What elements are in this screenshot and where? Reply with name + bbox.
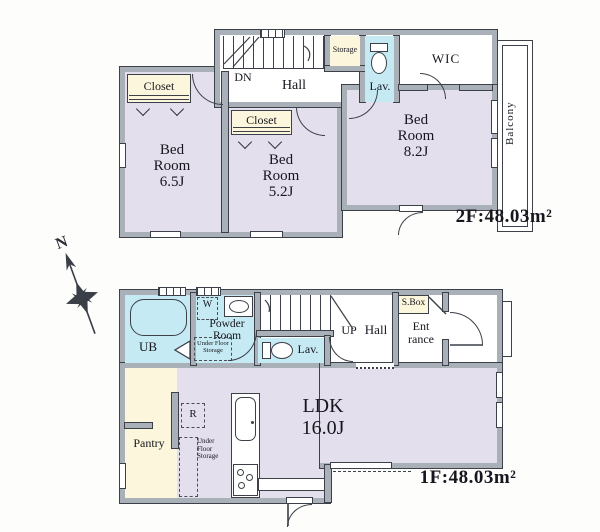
wall-2f-storage-bottom — [325, 66, 365, 71]
toilet-tank-2f — [370, 43, 388, 52]
washer-label: W — [197, 300, 218, 311]
stove-burner — [246, 474, 253, 481]
staircase-1f — [260, 295, 332, 333]
bedroom82-label: Bed Room 8.2J — [374, 112, 458, 161]
lav-1f-label: Lav. — [290, 343, 326, 356]
floor2-area-label: 2F:48.03m² — [438, 207, 570, 228]
floor1-area-label: 1F:48.03m² — [402, 468, 534, 489]
window-2f-bottom-52 — [250, 231, 283, 238]
kitchen-step — [258, 478, 325, 491]
bathtub — [130, 299, 187, 336]
closet2-label: Closet — [231, 114, 292, 127]
window-sweep-dashdot — [333, 471, 411, 472]
dn-label: DN — [228, 71, 258, 84]
bedroom52-label: Bed Room 5.2J — [239, 152, 323, 201]
toilet-bowl-2f — [371, 52, 387, 74]
ufs-powder-label: Under Floor Storage — [194, 340, 232, 354]
wall-2f-wic-bottom-right — [460, 85, 492, 90]
window-1f-left-ldk — [119, 463, 126, 489]
window-1f-right-lower — [496, 402, 503, 428]
staircase-2f — [223, 36, 325, 69]
wall-pantry-jog — [125, 423, 152, 428]
vanity-sink-oval — [229, 300, 249, 313]
wall-entrance-porch-top — [443, 293, 448, 311]
compass-star — [60, 276, 104, 320]
wall-pantry-right — [172, 393, 178, 448]
backdoor-gap — [286, 497, 313, 504]
closet-shelf-line — [233, 127, 290, 132]
wall-entrance-porch-bottom — [443, 340, 448, 365]
pantry-label: Pantry — [127, 437, 171, 450]
ufs-kitchen-box — [179, 437, 198, 497]
closet1-label: Closet — [127, 80, 191, 93]
door-arc-2f-exterior — [398, 212, 423, 235]
window-2f-right-upper — [491, 100, 498, 134]
wall-1f-ldk-step-right — [325, 465, 331, 502]
threshold-dotted — [356, 363, 394, 369]
compass: N — [43, 229, 111, 339]
window-2f-top — [260, 29, 285, 38]
ufs-kitchen-label: Under Floor Storage — [197, 438, 233, 461]
window-1f-bottom-ldk — [330, 462, 392, 469]
door-leaf-2f-exterior — [399, 205, 423, 212]
sbox-label: S.Box — [398, 298, 429, 308]
window-2f-bottom-65 — [150, 231, 181, 238]
hall-1f-label: Hall — [358, 323, 394, 337]
compass-needle — [68, 259, 95, 334]
stove-burner — [238, 482, 245, 489]
wall-stairs-bottom — [257, 331, 333, 336]
balcony-label: Balcony — [505, 90, 525, 156]
fridge-label: R — [181, 409, 205, 421]
compass-star-diagonal — [72, 288, 93, 309]
window-1f-right-upper — [496, 372, 503, 398]
pantry-room — [125, 368, 177, 498]
ldk-label: LDK 16.0J — [278, 396, 368, 439]
kitchen-sink — [235, 397, 256, 441]
backdoor-arc — [287, 504, 312, 527]
window-2f-left — [119, 143, 126, 168]
ub-label: UB — [130, 340, 166, 354]
window-1f-top-ub — [158, 287, 186, 296]
entrance-label: Ent rance — [396, 320, 446, 346]
closet-shelf-line — [129, 95, 189, 100]
window-2f-right-lower — [491, 138, 498, 168]
kitchen-faucet-dot — [251, 421, 254, 424]
entrance-step — [502, 301, 512, 357]
stove-burner — [237, 469, 244, 476]
compass-arrowhead — [61, 251, 76, 270]
compass-n-label: N — [53, 233, 70, 253]
toilet-tank-1f — [262, 342, 271, 359]
wic-label: WIC — [420, 52, 472, 66]
bedroom65-label: Bed Room 6.5J — [130, 142, 214, 191]
window-1f-top-powder — [196, 287, 221, 296]
hall-2f-label: Hall — [270, 78, 318, 93]
floorplan-canvas: Balcony Storage Lav. WIC DN Hall Closet … — [0, 0, 600, 532]
kitchen-stove — [233, 464, 258, 496]
storage-label: Storage — [326, 46, 364, 55]
